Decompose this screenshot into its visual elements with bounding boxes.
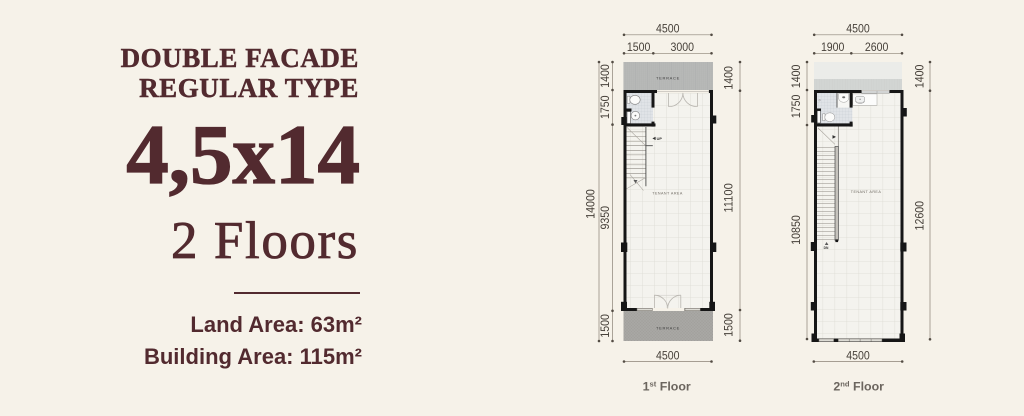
svg-text:1400: 1400 [913,64,927,88]
svg-text:1400: 1400 [598,64,612,88]
svg-text:1500: 1500 [721,313,735,337]
svg-text:2nd Floor: 2nd Floor [833,379,884,393]
svg-text:11100: 11100 [721,183,735,213]
svg-text:9350: 9350 [598,206,612,230]
svg-text:1750: 1750 [598,95,612,119]
svg-text:4500: 4500 [656,22,680,36]
svg-text:12600: 12600 [913,201,927,231]
svg-text:4500: 4500 [656,348,680,362]
svg-text:3000: 3000 [671,40,695,54]
svg-text:4500: 4500 [846,348,870,362]
svg-text:1st Floor: 1st Floor [643,379,691,393]
svg-text:1500: 1500 [598,314,612,338]
svg-text:1400: 1400 [721,66,735,90]
svg-text:1900: 1900 [821,40,845,54]
svg-text:UP: UP [657,137,663,141]
svg-text:14000: 14000 [584,189,598,219]
svg-text:1750: 1750 [789,94,803,118]
svg-text:1500: 1500 [627,40,651,54]
svg-text:TENANT AREA: TENANT AREA [851,190,882,194]
svg-text:TENANT AREA: TENANT AREA [652,191,683,195]
svg-text:4500: 4500 [846,22,870,36]
svg-text:2600: 2600 [865,40,889,54]
svg-text:10850: 10850 [789,215,803,245]
svg-text:1400: 1400 [789,64,803,88]
svg-text:DN: DN [824,246,829,250]
svg-text:TERRACE: TERRACE [656,326,680,331]
svg-text:TERRACE: TERRACE [656,75,680,80]
